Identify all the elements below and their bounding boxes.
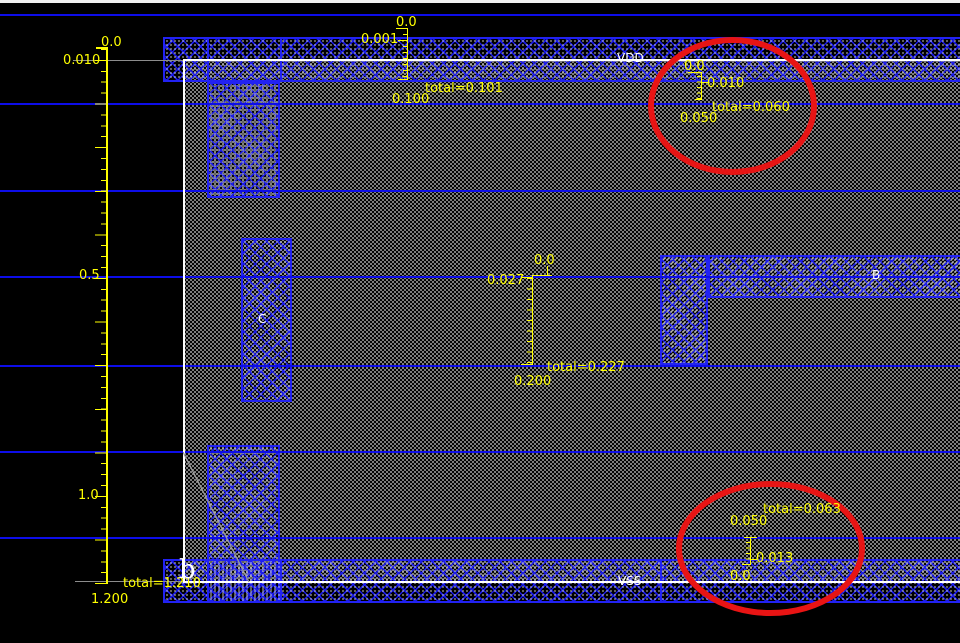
net-label-vdd: VDD [617,52,644,64]
cell-boundary-top [183,59,960,61]
ruler-minor-ticks [746,542,750,565]
ruler-line [106,47,108,584]
window-top-edge [0,0,960,3]
measure-label: total=0.060 [712,101,790,114]
measure-label: 0.013 [756,552,793,565]
cell-substrate-region [183,60,960,582]
measure-label: total=0.101 [425,82,503,95]
measure-label: 0.0 [396,16,417,29]
measure-label: 0.001 [361,33,398,46]
ruler-tick [521,364,533,365]
ruler-tick [532,275,552,276]
ruler-tick [398,40,408,41]
ruler-bottom-right[interactable] [744,537,751,565]
ruler-minor-ticks [527,278,532,365]
ruler-minor-ticks [697,76,701,100]
measure-label: 0.010 [63,54,100,67]
measure-label: 0.050 [730,515,767,528]
ruler-minor-ticks [403,28,407,80]
measure-label: 0.027 [487,274,524,287]
measure-label: 0.0 [534,254,555,267]
measure-label: 0.200 [514,375,551,388]
ruler-tick [398,79,408,80]
ruler-tick [744,537,757,538]
measure-label: 1.200 [91,593,128,606]
pin-label-b: B [872,269,880,281]
grid-track-line [0,451,960,453]
ruler-middle[interactable] [523,275,533,365]
pin-label-c: C [258,313,266,325]
pin-b-column-shape[interactable] [660,255,708,365]
ruler-line [407,28,408,80]
layout-canvas[interactable]: 0.0 0.010 0.5 1.0 total=1.210 1.200 0.0 … [0,0,960,643]
measure-label: 0.050 [680,112,717,125]
measure-label: 0.0 [101,36,122,49]
measure-label: 0.0 [730,570,751,583]
net-label-vss: VSS [618,575,641,587]
pin-c-shape[interactable] [241,238,292,402]
grid-track-line [0,190,960,192]
ruler-tick [695,99,702,100]
ruler-top[interactable] [399,28,408,80]
ruler-tick [742,564,751,565]
contact-stack-top-left[interactable] [207,82,280,198]
measure-label: 1.0 [78,489,99,502]
ruler-major-ticks [95,60,106,584]
ruler-line [532,275,533,365]
cell-marker-b: b [179,558,196,582]
measure-label: total=0.063 [763,503,841,516]
grid-track-line [0,365,960,367]
measure-label: 0.010 [707,77,744,90]
ruler-left[interactable] [95,47,108,584]
ruler-top-right[interactable] [695,72,702,100]
measure-label: 0.100 [392,93,429,106]
grid-track-line [0,276,960,278]
measure-label: 0.0 [684,60,705,73]
measure-label: 0.5 [79,269,100,282]
ruler-line [701,72,702,100]
grid-track-line [0,14,960,16]
measure-label: total=0.227 [547,361,625,374]
ruler-line [750,537,751,565]
